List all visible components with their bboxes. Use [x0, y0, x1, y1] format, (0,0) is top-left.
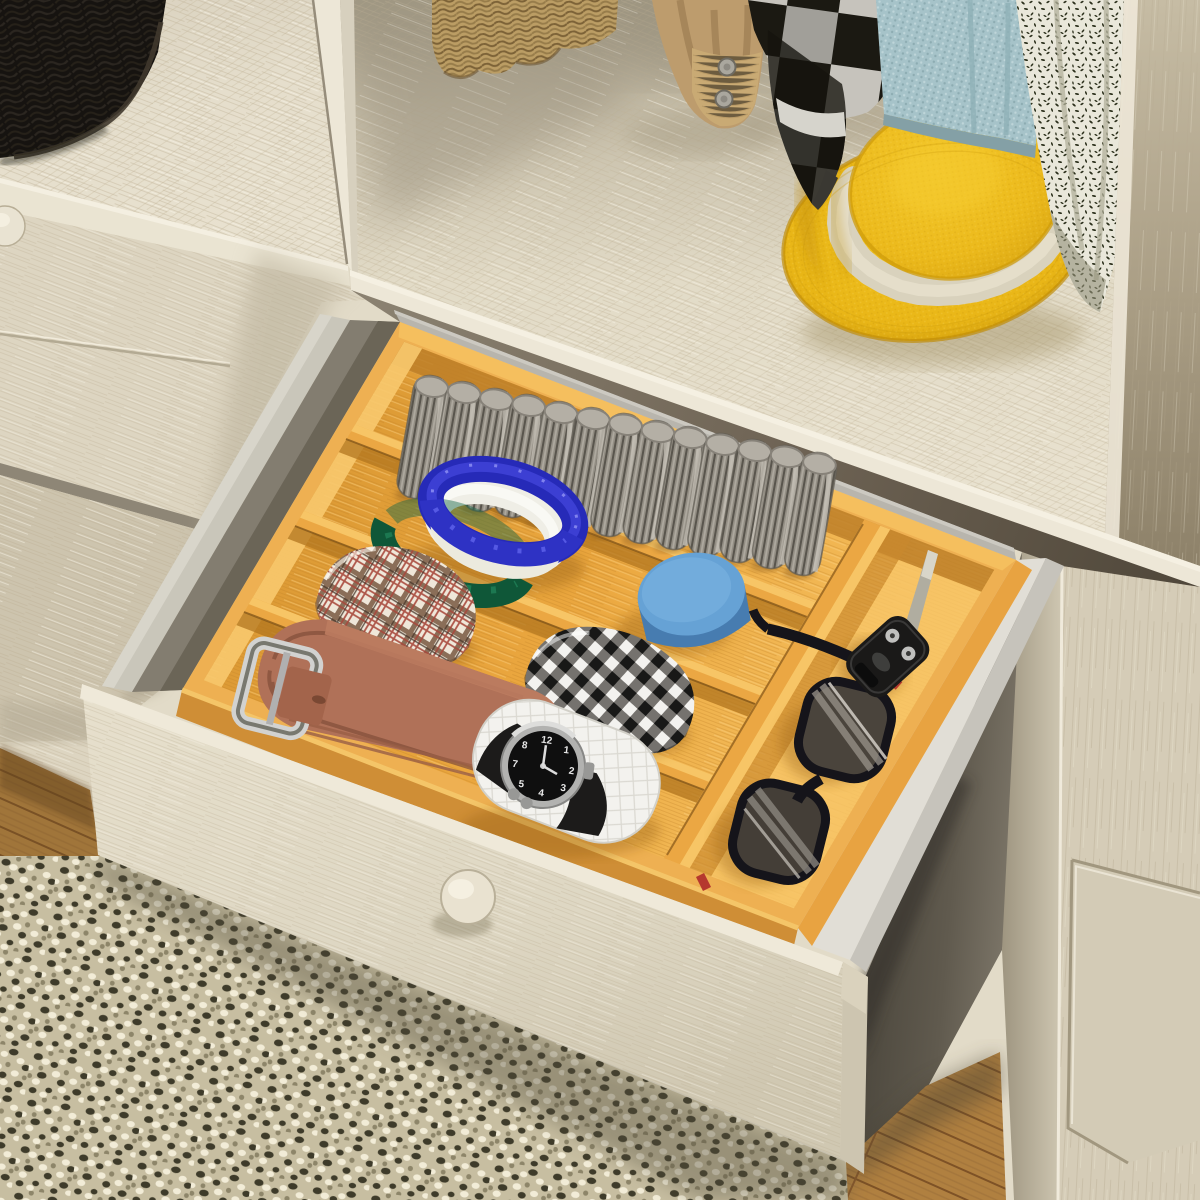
svg-text:12: 12	[540, 735, 553, 748]
